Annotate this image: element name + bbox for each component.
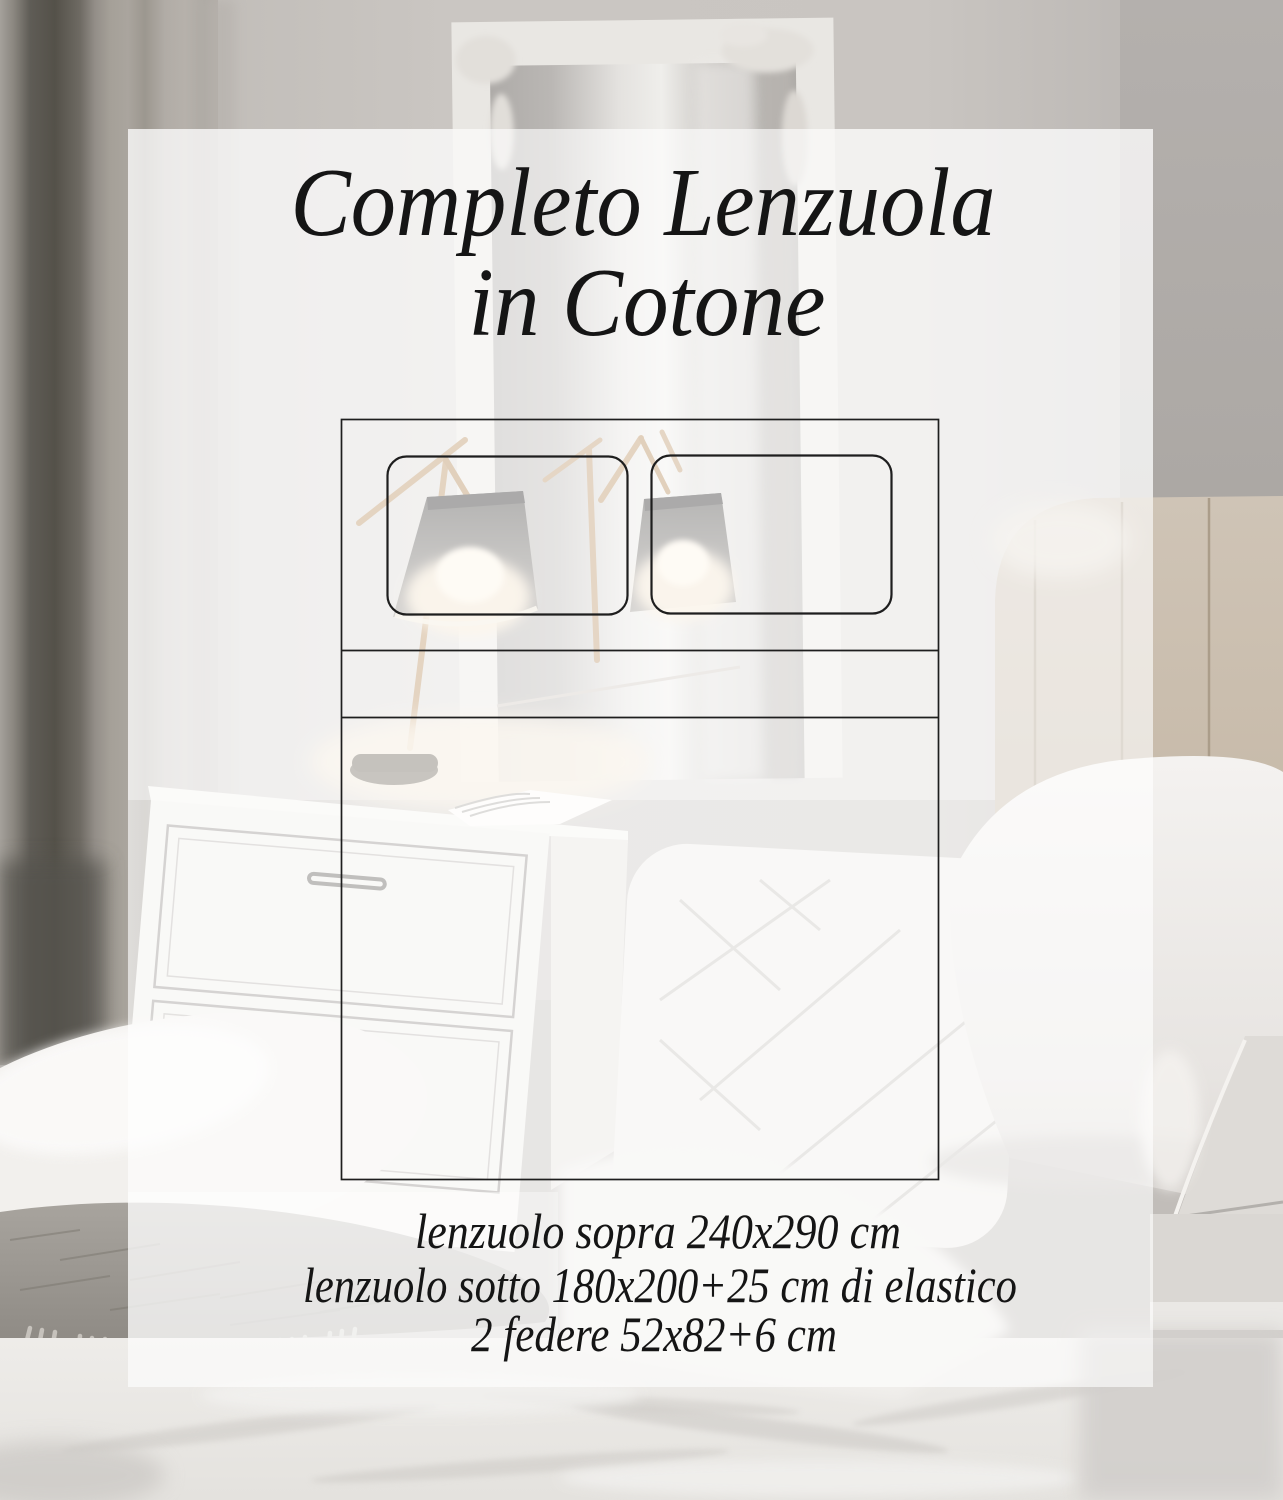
svg-text:lenzuolo sopra 240x290 cm: lenzuolo sopra 240x290 cm (415, 1203, 901, 1259)
svg-text:in Cotone: in Cotone (469, 249, 826, 357)
svg-text:lenzuolo sotto 180x200+25 cm d: lenzuolo sotto 180x200+25 cm di elastico (303, 1257, 1017, 1313)
svg-text:2 federe 52x82+6 cm: 2 federe 52x82+6 cm (471, 1306, 837, 1362)
svg-text:Completo Lenzuola: Completo Lenzuola (291, 149, 996, 257)
